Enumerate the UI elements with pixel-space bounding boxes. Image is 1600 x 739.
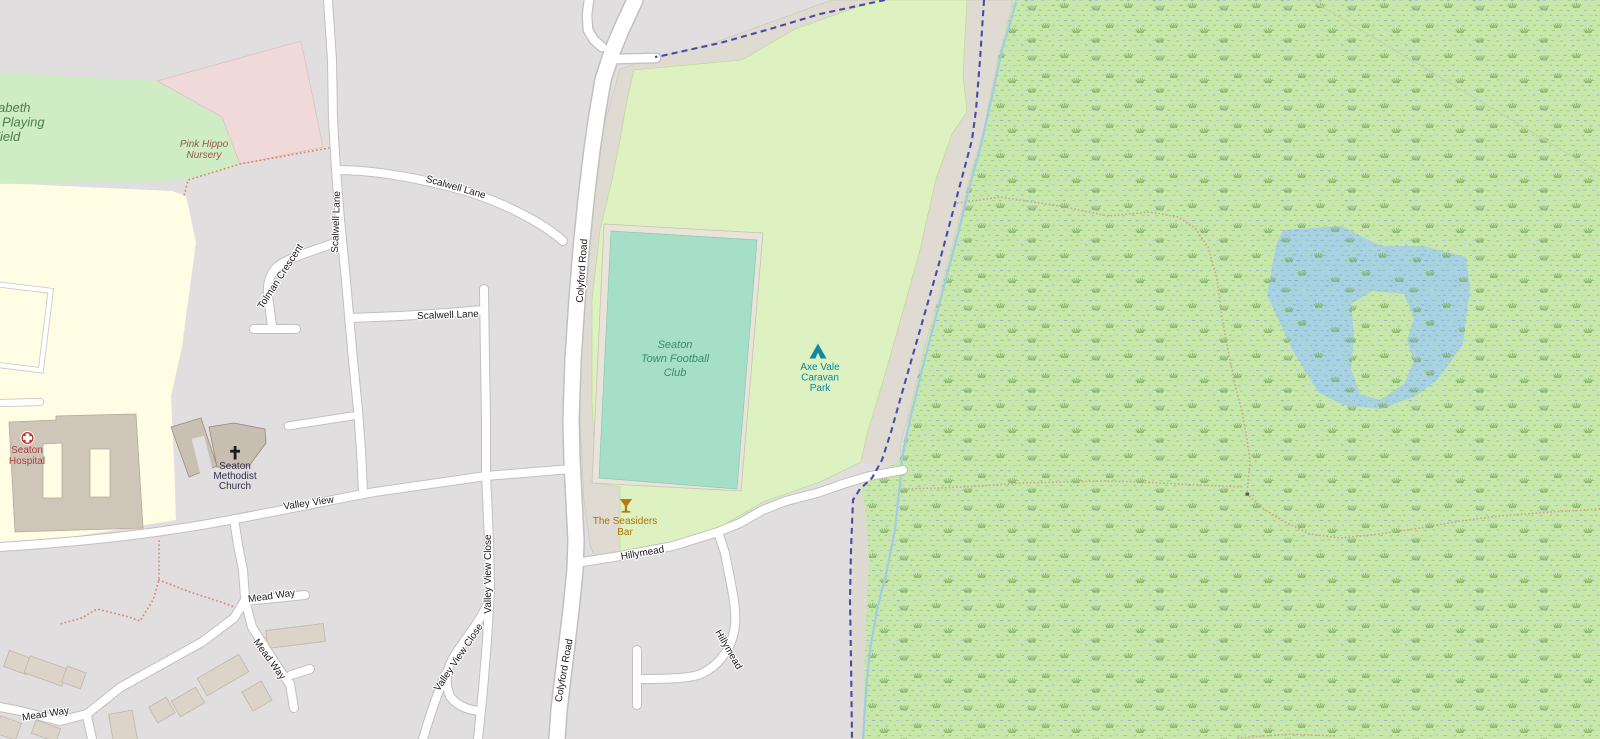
- svg-text:Playing: Playing: [2, 115, 45, 130]
- svg-text:Pink Hippo: Pink Hippo: [180, 139, 229, 150]
- svg-text:The Seasiders: The Seasiders: [593, 516, 657, 527]
- svg-text:abeth: abeth: [0, 100, 31, 115]
- svg-text:Valley View Close: Valley View Close: [483, 534, 494, 614]
- svg-text:Church: Church: [219, 481, 251, 492]
- svg-text:Scalwell Lane: Scalwell Lane: [330, 190, 343, 252]
- svg-text:Town Football: Town Football: [641, 353, 710, 365]
- svg-text:Bar: Bar: [617, 527, 633, 538]
- svg-text:Field: Field: [0, 129, 21, 144]
- svg-text:Seaton: Seaton: [11, 445, 43, 456]
- svg-text:Club: Club: [664, 367, 687, 379]
- svg-text:Park: Park: [810, 383, 832, 394]
- svg-text:Seaton: Seaton: [658, 339, 693, 351]
- svg-text:Caravan: Caravan: [801, 373, 839, 384]
- svg-text:Axe Vale: Axe Vale: [800, 362, 840, 373]
- svg-text:Hospital: Hospital: [9, 456, 45, 467]
- svg-text:Scalwell Lane: Scalwell Lane: [417, 309, 479, 322]
- svg-text:Nursery: Nursery: [186, 150, 222, 161]
